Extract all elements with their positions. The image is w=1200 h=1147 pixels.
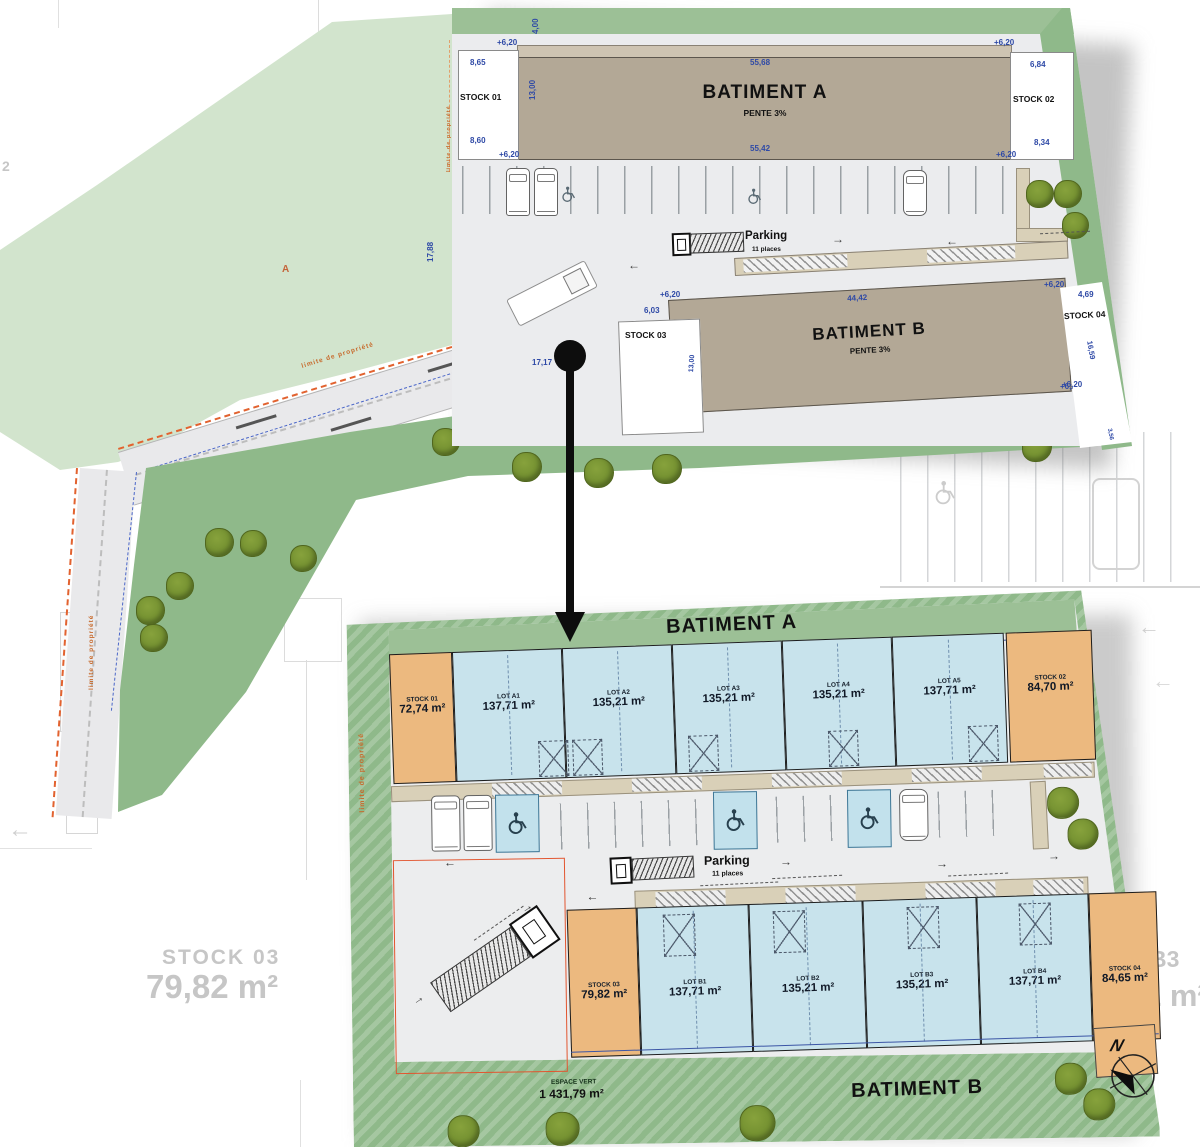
wheelchair-icon	[746, 188, 763, 205]
door-hatch	[907, 906, 940, 949]
level-mark: +6,20	[994, 38, 1014, 47]
door-hatch	[828, 730, 859, 767]
door-hatch	[538, 740, 569, 777]
stock01-dim-height: 13,00	[528, 80, 537, 100]
unit-stock02: STOCK 02 84,70 m²	[1006, 630, 1096, 763]
batiment-b-dim-top: 44,42	[847, 293, 868, 303]
arrow-right-icon: →	[832, 232, 844, 246]
truck-icon	[609, 850, 696, 886]
car-icon	[899, 789, 929, 841]
tree-icon	[447, 1115, 479, 1147]
site-plan-page: 2 ← ← ← STOCK 03 79,82 m² B3 1 m² A	[0, 0, 1200, 1147]
handicap-stall	[847, 789, 892, 848]
unit-lot-b2: LOT B2 135,21 m²	[748, 900, 867, 1052]
tree-icon	[584, 458, 614, 488]
wheelchair-icon	[723, 808, 747, 832]
unit-stock01: STOCK 01 72,74 m²	[389, 652, 456, 784]
handicap-stall	[713, 791, 758, 850]
level-mark: +6,20	[1062, 380, 1082, 389]
faded-car	[1092, 478, 1140, 570]
parking-places: 11 places	[752, 246, 781, 253]
parking-places: 11 places	[712, 870, 743, 877]
batiment-a-dim-bottom: 55,42	[750, 144, 770, 153]
stock04-dim-top: 4,69	[1078, 290, 1094, 299]
unit-stock04: STOCK 04 84,65 m²	[1088, 891, 1161, 1041]
van-icon	[431, 795, 461, 851]
unit-stock03: STOCK 03 79,82 m²	[567, 908, 642, 1058]
stock02-label: STOCK 02	[1013, 94, 1054, 104]
wall	[1030, 781, 1049, 850]
field-marker-a: A	[282, 264, 289, 275]
arrow-right-icon: →	[1048, 849, 1060, 863]
wheelchair-icon	[505, 811, 529, 835]
faded-line	[306, 660, 307, 880]
detail-plan: BATIMENT A limite de propriété STOCK 01 …	[344, 584, 1162, 1147]
level-mark: +6,20	[660, 290, 680, 299]
wheelchair-icon	[932, 480, 958, 506]
batiment-a-slope: PENTE 3%	[620, 108, 910, 118]
wheelchair-icon	[857, 806, 881, 830]
level-mark: +6,20	[499, 150, 519, 159]
property-limit-label: limite de propriété	[358, 733, 366, 813]
property-limit-label: limite de propriété	[446, 105, 452, 172]
stock02-dim-bottom: 8,34	[1034, 138, 1050, 147]
door-hatch	[968, 725, 999, 762]
stock01-dim-top: 8,65	[470, 58, 486, 67]
door-hatch	[663, 914, 696, 957]
batiment-a-title: BATIMENT A	[620, 82, 910, 104]
stock01-zone	[458, 50, 519, 160]
stock03-dim-height: 13,00	[688, 355, 696, 373]
batiment-a-dim-top: 55,68	[750, 58, 770, 67]
entry-width-dim: 17,17	[532, 358, 552, 367]
callout-arrow-stem	[566, 366, 574, 616]
espace-vert-label: ESPACE VERT	[551, 1078, 596, 1086]
stock03-label: STOCK 03	[625, 330, 666, 340]
espace-vert-area: 1 431,79 m²	[539, 1086, 604, 1101]
faded-digit: 2	[2, 158, 10, 174]
arrow-right-icon: →	[780, 855, 792, 869]
faded-line	[58, 0, 59, 28]
door-hatch	[572, 739, 603, 776]
stock01-label: STOCK 01	[460, 92, 501, 102]
callout-arrow-head	[555, 612, 585, 642]
row-b: STOCK 03 79,82 m² LOT B1 137,71 m² LOT B…	[567, 891, 1163, 1060]
arrow-right-icon: →	[936, 856, 948, 870]
faded-stock03-name: STOCK 03	[162, 946, 280, 970]
parking-label: Parking	[704, 853, 750, 868]
property-limit-label: limite de propriété	[88, 615, 95, 690]
tree-icon	[652, 454, 682, 484]
truck-icon	[668, 227, 747, 258]
batiment-b: 44,42 BATIMENT B PENTE 3%	[668, 278, 1072, 414]
van-icon	[506, 168, 530, 216]
faded-stock03-area: 79,82 m²	[146, 968, 278, 1006]
door-hatch	[773, 910, 806, 953]
stock01-dim-width: 4,00	[531, 18, 540, 34]
faded-line	[300, 1080, 301, 1147]
arrow-left-icon: ←	[628, 258, 640, 272]
car-icon	[903, 170, 927, 216]
handicap-stall	[495, 794, 540, 853]
left-height-dim: 17,88	[426, 242, 435, 262]
north-compass: N	[1104, 1035, 1161, 1104]
level-mark: +6,20	[1044, 280, 1064, 289]
tree-icon	[512, 452, 542, 482]
stock01-dim-bottom: 8,60	[470, 136, 486, 145]
stock03-dim-top: 6,03	[644, 306, 660, 315]
level-mark: +6,20	[497, 38, 517, 47]
faded-arrow-left-icon: ←	[8, 816, 32, 844]
van-icon	[534, 168, 558, 216]
door-hatch	[1019, 903, 1052, 946]
stock02-dim-top: 6,84	[1030, 60, 1046, 69]
wheelchair-icon	[560, 186, 577, 203]
row-a: STOCK 01 72,74 m² LOT A1 137,71 m² LOT A…	[389, 630, 1098, 787]
arrow-left-icon: ←	[586, 889, 598, 903]
door-hatch	[688, 735, 719, 772]
van-icon	[463, 795, 493, 851]
level-mark: +6,20	[996, 150, 1016, 159]
parking-label: Parking	[745, 230, 787, 242]
faded-line	[0, 848, 92, 849]
